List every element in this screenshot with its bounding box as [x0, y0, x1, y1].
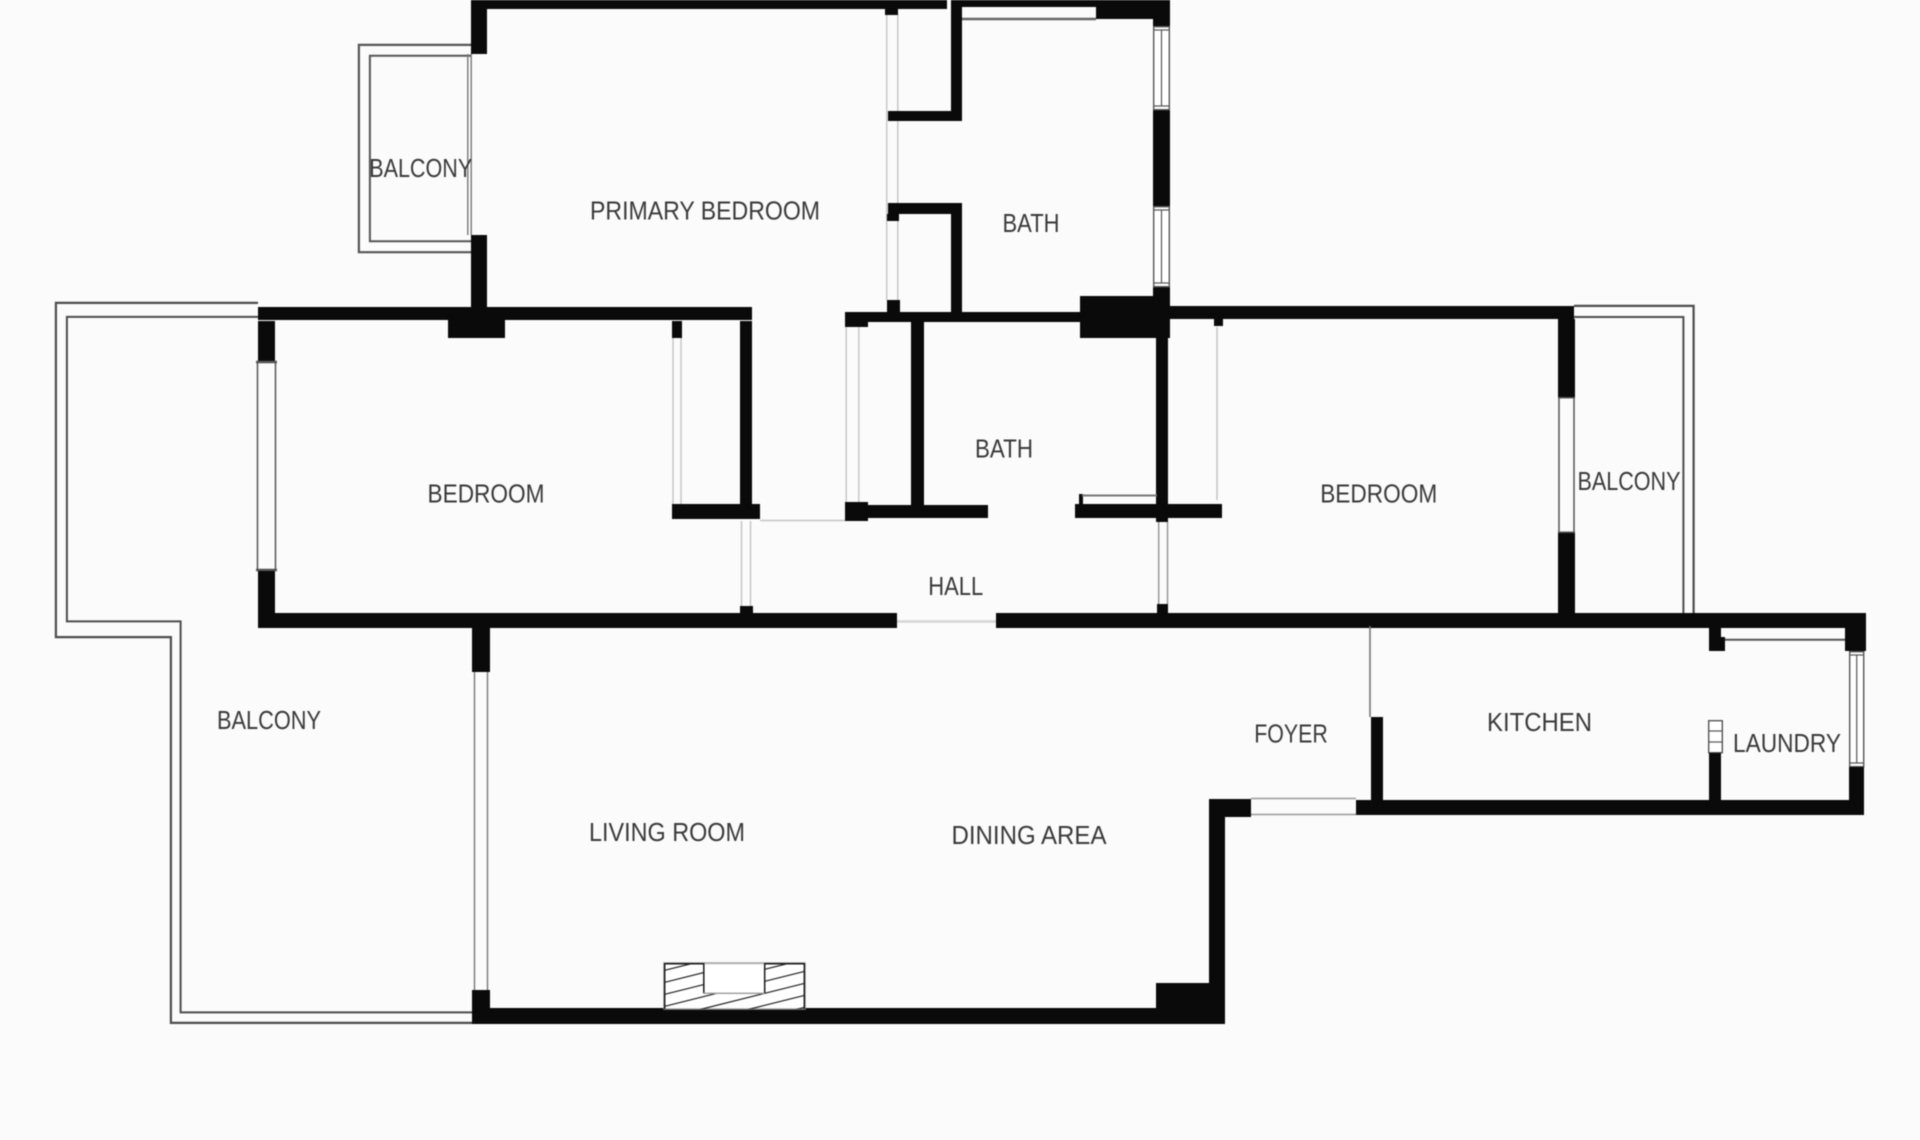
svg-text:LAUNDRY: LAUNDRY — [1733, 730, 1841, 758]
svg-text:KITCHEN: KITCHEN — [1487, 709, 1592, 737]
svg-text:LIVING ROOM: LIVING ROOM — [589, 819, 745, 847]
svg-text:BATH: BATH — [1003, 210, 1060, 238]
svg-text:BALCONY: BALCONY — [217, 707, 321, 735]
svg-text:BEDROOM: BEDROOM — [1320, 481, 1437, 509]
svg-text:BEDROOM: BEDROOM — [428, 481, 545, 509]
svg-text:DINING AREA: DINING AREA — [952, 822, 1107, 850]
svg-text:BALCONY: BALCONY — [1578, 468, 1681, 496]
svg-text:FOYER: FOYER — [1254, 721, 1328, 749]
svg-text:BALCONY: BALCONY — [369, 155, 472, 183]
svg-text:BATH: BATH — [975, 436, 1033, 464]
svg-text:HALL: HALL — [928, 573, 983, 601]
svg-text:PRIMARY BEDROOM: PRIMARY BEDROOM — [590, 198, 820, 226]
